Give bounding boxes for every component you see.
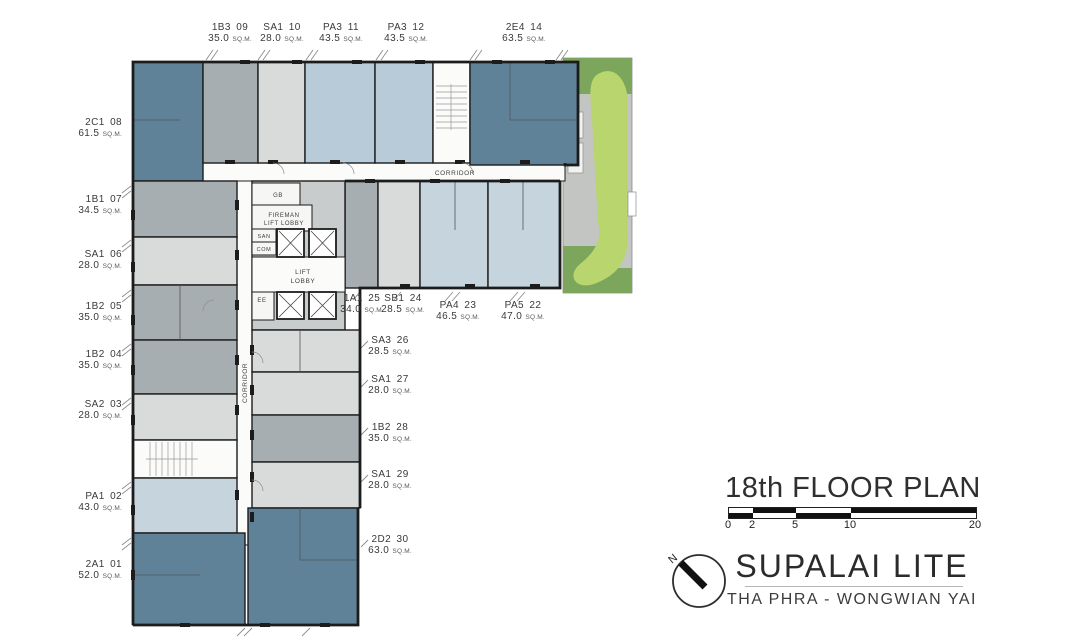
title-block: 18th FLOOR PLAN 0251020 N SUPALAI LITE T… [660, 460, 1020, 638]
unit-label-2C1-08: 2C1 0861.5 SQ.M. [78, 117, 122, 140]
unit-label-PA3-11: PA3 1143.5 SQ.M. [319, 22, 363, 45]
unit-label-2D2-30: 2D2 3063.0 SQ.M. [368, 534, 412, 557]
room-gb-label: GB [273, 193, 283, 199]
scale-tick-0: 0 [725, 519, 731, 531]
scale-tick-2: 2 [749, 519, 755, 531]
fireman-lobby-label-2: LIFT LOBBY [264, 221, 304, 227]
unit-PA5-22 [488, 181, 560, 288]
brand-subtitle: THA PHRA - WONGWIAN YAI [702, 591, 1002, 609]
unit-label-PA1-02: PA1 0243.0 SQ.M. [78, 491, 122, 514]
fireman-lobby-label-1: FIREMAN [268, 213, 299, 219]
scale-tick-20: 20 [969, 519, 981, 531]
corridor-v-label: CORRIDOR [242, 363, 249, 403]
room-ee-label: EE [257, 298, 266, 304]
unit-label-PA3-12: PA3 1243.5 SQ.M. [384, 22, 428, 45]
unit-label-PA5-22: PA5 2247.0 SQ.M. [501, 300, 545, 323]
unit-label-SA3-26: SA3 2628.5 SQ.M. [368, 335, 412, 358]
unit-label-1B2-28: 1B2 2835.0 SQ.M. [368, 422, 412, 445]
lift-lobby-label-2: LOBBY [291, 278, 316, 285]
unit-label-2A1-01: 2A1 0152.0 SQ.M. [78, 559, 122, 582]
unit-label-SA1-27: SA1 2728.0 SQ.M. [368, 374, 412, 397]
unit-label-1A1-25: 1A1 2534.0 SQ.M. [340, 293, 384, 316]
unit-SB1-24 [378, 181, 420, 288]
unit-label-1B2-04: 1B2 0435.0 SQ.M. [78, 349, 122, 372]
unit-label-1B2-05: 1B2 0535.0 SQ.M. [78, 301, 122, 324]
unit-1B3-09 [203, 62, 258, 163]
unit-label-SA1-29: SA1 2928.0 SQ.M. [368, 469, 412, 492]
unit-1B2-05 [133, 285, 237, 340]
unit-SA1-29 [252, 462, 360, 508]
unit-2A1-01 [133, 533, 245, 625]
unit-PA4-23 [420, 181, 488, 288]
unit-PA1-02 [133, 478, 237, 533]
room-com-label: COM [257, 247, 272, 253]
unit-label-PA4-23: PA4 2346.5 SQ.M. [436, 300, 480, 323]
unit-PA3-12 [375, 62, 433, 163]
brand-name: SUPALAI LITE [702, 548, 1002, 585]
lift-lobby-label-1: LIFT [295, 269, 311, 276]
room-san-label: SAN [257, 234, 270, 240]
unit-PA3-11 [305, 62, 375, 163]
scale-bar [728, 507, 977, 519]
unit-SA1-27 [252, 372, 360, 415]
unit-2E4-14 [470, 62, 578, 165]
corridor-h-label: CORRIDOR [435, 170, 475, 177]
unit-2D2-30 [248, 508, 358, 625]
unit-label-2E4-14: 2E4 1463.5 SQ.M. [502, 22, 546, 45]
unit-1B2-04 [133, 340, 237, 394]
unit-2C1-08 [133, 62, 203, 181]
unit-label-1B3-09: 1B3 0935.0 SQ.M. [208, 22, 252, 45]
unit-label-SA1-10: SA1 1028.0 SQ.M. [260, 22, 304, 45]
floor-plan-title: 18th FLOOR PLAN [718, 472, 988, 505]
floor-plan-page: CORRIDOR CORRIDOR GB FIREMAN LIFT LOBBY … [0, 0, 1080, 640]
unit-label-1B1-07: 1B1 0734.5 SQ.M. [78, 194, 122, 217]
unit-label-SB1-24: SB1 2428.5 SQ.M. [381, 293, 425, 316]
unit-SA1-10 [258, 62, 305, 163]
scale-tick-5: 5 [792, 519, 798, 531]
unit-1B1-07 [133, 181, 237, 237]
unit-label-SA2-03: SA2 0328.0 SQ.M. [78, 399, 122, 422]
unit-1A1-25 [345, 181, 378, 288]
unit-SA3-26 [252, 330, 360, 372]
scale-tick-10: 10 [844, 519, 856, 531]
unit-label-SA1-06: SA1 0628.0 SQ.M. [78, 249, 122, 272]
brand-divider [745, 586, 963, 587]
service-core [252, 181, 345, 330]
unit-1B2-28 [252, 415, 360, 462]
unit-SA1-06 [133, 237, 237, 285]
unit-SA2-03 [133, 394, 237, 440]
stairwell-top [433, 62, 470, 163]
